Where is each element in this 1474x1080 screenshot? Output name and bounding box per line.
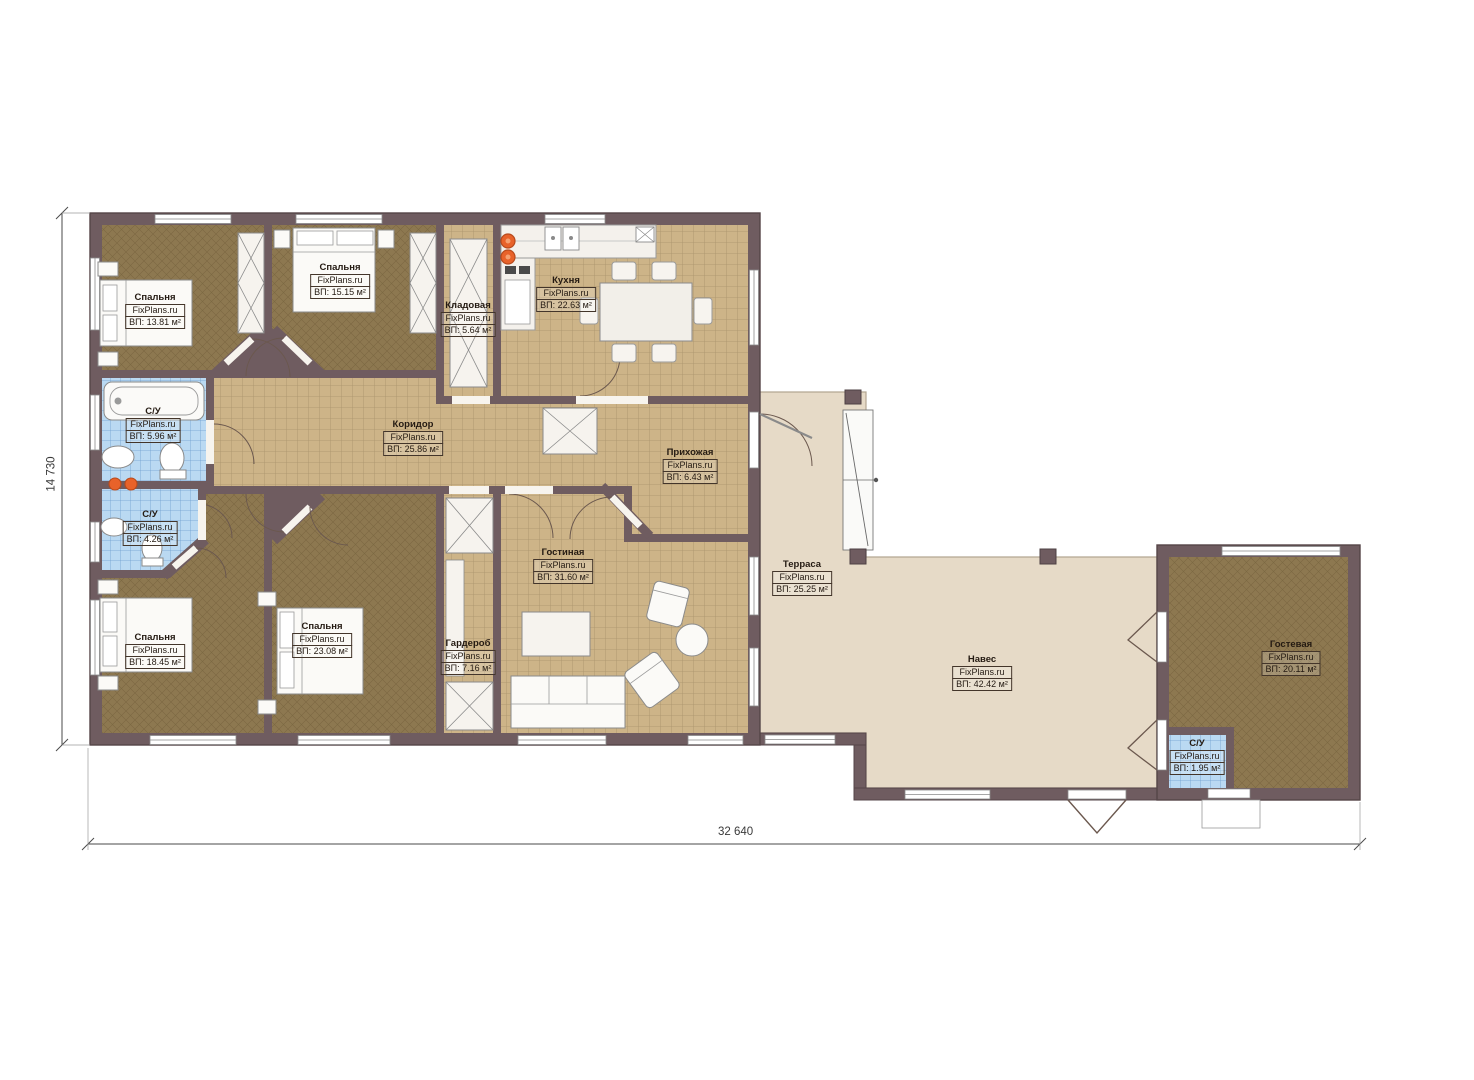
room-label-storage: Кладовая FixPlans.ru ВП: 5.64 м² (441, 300, 496, 337)
room-brand: FixPlans.ru (310, 274, 370, 287)
room-name: Спальня (292, 621, 352, 632)
room-area: ВП: 5.96 м² (126, 430, 181, 443)
room-brand: FixPlans.ru (126, 418, 181, 431)
room-brand: FixPlans.ru (123, 521, 178, 534)
room-label-guest: Гостевая FixPlans.ru ВП: 20.11 м² (1261, 639, 1320, 676)
room-label-terrace: Терраса FixPlans.ru ВП: 25.25 м² (772, 559, 832, 596)
coffee-table-icon (522, 612, 590, 656)
room-brand: FixPlans.ru (383, 431, 443, 444)
room-name: Терраса (772, 559, 832, 570)
room-area: ВП: 23.08 м² (292, 645, 352, 658)
room-area: ВП: 25.86 м² (383, 443, 443, 456)
room-name: Спальня (125, 632, 185, 643)
room-brand: FixPlans.ru (125, 644, 185, 657)
room-brand: FixPlans.ru (536, 287, 596, 300)
floorplan-drawing (0, 0, 1474, 1080)
room-label-bathroom-mid: С/У FixPlans.ru ВП: 4.26 м² (123, 509, 178, 546)
room-brand: FixPlans.ru (125, 304, 185, 317)
cooktop-icon (636, 227, 654, 242)
room-brand: FixPlans.ru (772, 571, 832, 584)
room-label-wardrobe: Гардероб FixPlans.ru ВП: 7.16 м² (441, 638, 496, 675)
canopy-door (1068, 790, 1126, 833)
post (850, 549, 866, 564)
room-label-bathroom-top: С/У FixPlans.ru ВП: 5.96 м² (126, 406, 181, 443)
room-label-bedroom-bottom-left: Спальня FixPlans.ru ВП: 18.45 м² (125, 632, 185, 669)
room-name: Гостевая (1261, 639, 1320, 650)
room-label-hallway: Прихожая FixPlans.ru ВП: 6.43 м² (663, 447, 718, 484)
closet-icon (238, 233, 264, 333)
room-label-living: Гостиная FixPlans.ru ВП: 31.60 м² (533, 547, 593, 584)
room-name: Спальня (310, 262, 370, 273)
dimension-width-label: 32 640 (718, 826, 753, 838)
room-name: Спальня (125, 292, 185, 303)
room-label-bathroom-guest: С/У FixPlans.ru ВП: 1.95 м² (1170, 738, 1225, 775)
room-area: ВП: 31.60 м² (533, 571, 593, 584)
room-name: Кладовая (441, 300, 496, 311)
room-area: ВП: 20.11 м² (1261, 663, 1320, 676)
room-name: Кухня (536, 275, 596, 286)
dimension-height-label: 14 730 (46, 456, 58, 491)
room-label-bedroom-top: Спальня FixPlans.ru ВП: 15.15 м² (310, 262, 370, 299)
room-name: Гостиная (533, 547, 593, 558)
room-area: ВП: 42.42 м² (952, 678, 1012, 691)
post (1040, 549, 1056, 564)
room-area: ВП: 22.63 м² (536, 299, 596, 312)
room-name: С/У (123, 509, 178, 520)
room-brand: FixPlans.ru (1261, 651, 1320, 664)
room-brand: FixPlans.ru (441, 312, 496, 325)
room-label-canopy: Навес FixPlans.ru ВП: 42.42 м² (952, 654, 1012, 691)
room-label-bedroom-bottom: Спальня FixPlans.ru ВП: 23.08 м² (292, 621, 352, 658)
room-label-corridor: Коридор FixPlans.ru ВП: 25.86 м² (383, 419, 443, 456)
room-brand: FixPlans.ru (533, 559, 593, 572)
room-area: ВП: 5.64 м² (441, 324, 496, 337)
terrace-glass-screen (843, 410, 878, 550)
room-brand: FixPlans.ru (441, 650, 496, 663)
room-area: ВП: 15.15 м² (310, 286, 370, 299)
closet-icon (543, 408, 597, 454)
floorplan-canvas: Спальня FixPlans.ru ВП: 13.81 м² Спальня… (0, 0, 1474, 1080)
guest-window (1222, 547, 1340, 556)
room-name: С/У (1170, 738, 1225, 749)
room-brand: FixPlans.ru (952, 666, 1012, 679)
side-table-icon (676, 624, 708, 656)
guest-house (1128, 545, 1360, 828)
room-name: Гардероб (441, 638, 496, 649)
room-label-bedroom-top-left: Спальня FixPlans.ru ВП: 13.81 м² (125, 292, 185, 329)
room-area: ВП: 1.95 м² (1170, 762, 1225, 775)
room-area: ВП: 7.16 м² (441, 662, 496, 675)
sofa-icon (511, 676, 625, 728)
room-brand: FixPlans.ru (292, 633, 352, 646)
canopy-window (905, 790, 990, 799)
room-area: ВП: 25.25 м² (772, 583, 832, 596)
sink-icon (102, 446, 134, 468)
room-name: Прихожая (663, 447, 718, 458)
post (845, 390, 861, 404)
room-area: ВП: 4.26 м² (123, 533, 178, 546)
room-brand: FixPlans.ru (663, 459, 718, 472)
room-brand: FixPlans.ru (1170, 750, 1225, 763)
room-area: ВП: 13.81 м² (125, 316, 185, 329)
room-label-kitchen: Кухня FixPlans.ru ВП: 22.63 м² (536, 275, 596, 312)
room-name: Навес (952, 654, 1012, 665)
room-area: ВП: 6.43 м² (663, 471, 718, 484)
room-name: С/У (126, 406, 181, 417)
room-name: Коридор (383, 419, 443, 430)
closet-icon (410, 233, 436, 333)
room-area: ВП: 18.45 м² (125, 656, 185, 669)
terrace-window (765, 735, 835, 744)
